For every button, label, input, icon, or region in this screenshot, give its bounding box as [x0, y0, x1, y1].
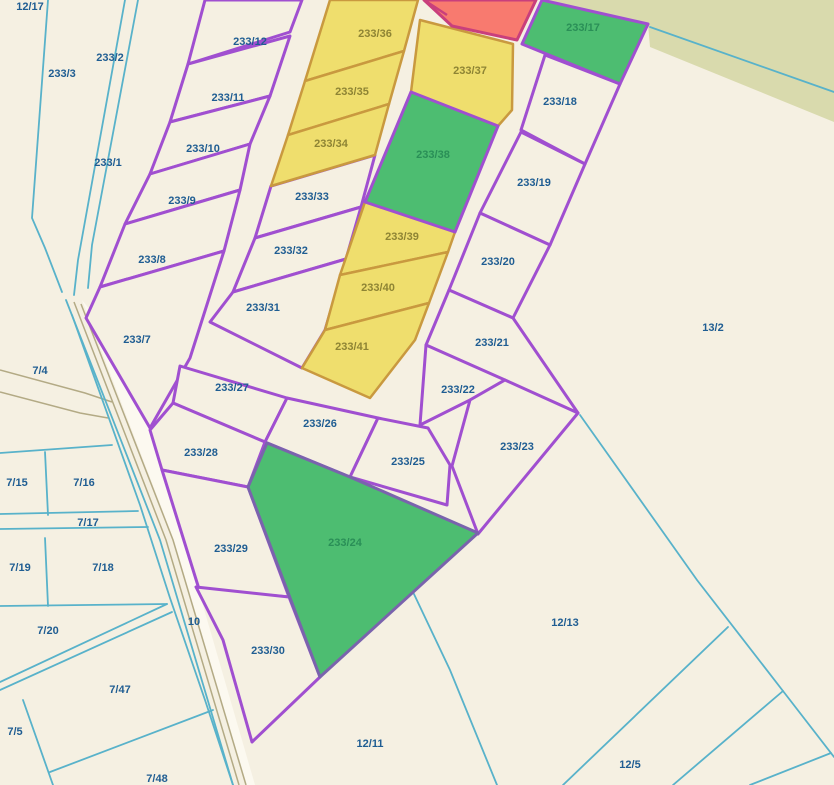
parcel-label: 233/36: [358, 28, 392, 40]
parcel-label: 7/47: [109, 684, 130, 696]
parcel-label: 7/17: [77, 517, 98, 529]
parcel-label: 233/9: [168, 195, 196, 207]
parcel-label: 233/24: [328, 537, 363, 549]
parcel-label: 233/30: [251, 645, 285, 657]
parcel-label: 7/16: [73, 477, 94, 489]
parcel-label: 233/10: [186, 143, 220, 155]
parcel-label: 12/13: [551, 617, 579, 629]
parcel-label: 7/19: [9, 562, 30, 574]
parcel-label: 7/48: [146, 773, 167, 785]
cadastral-map[interactable]: 12/17233/3233/2233/1233/12233/11233/1023…: [0, 0, 834, 785]
parcel-label: 233/35: [335, 86, 369, 98]
parcel-label: 233/18: [543, 96, 577, 108]
parcel-label: 233/22: [441, 384, 475, 396]
parcel-label: 233/40: [361, 282, 395, 294]
parcel-label: 233/28: [184, 447, 218, 459]
parcel-label: 7/20: [37, 625, 58, 637]
parcel-label: 233/17: [566, 22, 600, 34]
parcel-label: 233/8: [138, 254, 166, 266]
parcel-label: 233/34: [314, 138, 349, 150]
parcel-label: 7/15: [6, 477, 27, 489]
parcel-label: 233/31: [246, 302, 280, 314]
parcel-label: 233/21: [475, 337, 509, 349]
parcel-label: 233/25: [391, 456, 425, 468]
parcel-label: 233/37: [453, 65, 487, 77]
parcel-label: 233/20: [481, 256, 515, 268]
parcel-label: 12/5: [619, 759, 640, 771]
parcel-label: 233/29: [214, 543, 248, 555]
parcel-label: 12/17: [16, 1, 44, 13]
parcel-label: 7/5: [7, 726, 22, 738]
parcel-label: 233/38: [416, 149, 450, 161]
parcel-label: 233/32: [274, 245, 308, 257]
parcel-label: 233/11: [211, 92, 244, 104]
parcel-label: 233/27: [215, 382, 249, 394]
parcel-label: 233/1: [94, 157, 122, 169]
parcel-label: 7/4: [32, 365, 48, 377]
parcel-label: 233/41: [335, 341, 369, 353]
parcel-label: 233/33: [295, 191, 329, 203]
parcel-label: 233/19: [517, 177, 551, 189]
parcel-label: 233/26: [303, 418, 337, 430]
cadastral-map-viewport[interactable]: 12/17233/3233/2233/1233/12233/11233/1023…: [0, 0, 834, 785]
parcel-label: 10: [188, 616, 200, 628]
parcel-label: 7/18: [92, 562, 113, 574]
parcel-label: 233/3: [48, 68, 76, 80]
parcel-label: 233/39: [385, 231, 419, 243]
parcel-label: 233/7: [123, 334, 151, 346]
parcel-label: 233/2: [96, 52, 124, 64]
parcel-label: 233/23: [500, 441, 534, 453]
parcel-label: 13/2: [702, 322, 723, 334]
parcel-label: 233/12: [233, 36, 267, 48]
parcel-label: 12/11: [357, 738, 384, 750]
